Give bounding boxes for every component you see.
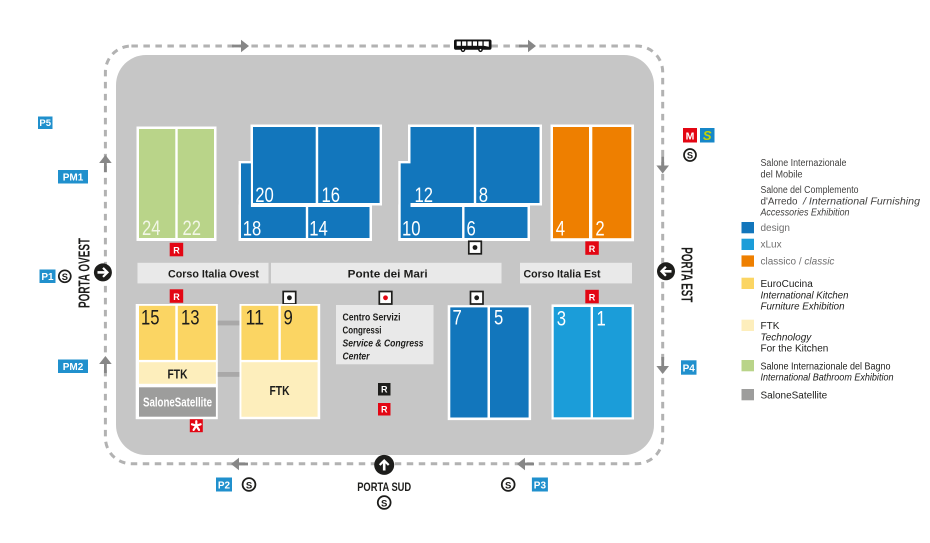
svg-text:24: 24 [142,217,161,240]
svg-text:S: S [703,128,712,143]
svg-text:PM1: PM1 [63,172,84,183]
svg-text:P1: P1 [41,272,54,283]
svg-text:PORTA EST: PORTA EST [678,247,695,302]
svg-text:P4: P4 [683,363,696,374]
svg-text:PORTA OVEST: PORTA OVEST [77,238,94,308]
svg-text:Center: Center [343,352,371,363]
svg-text:P2: P2 [218,480,231,491]
svg-text:7: 7 [453,307,462,330]
svg-text:P5: P5 [39,118,51,129]
svg-text:design: design [761,223,790,234]
svg-text:8: 8 [479,184,488,207]
svg-text:R: R [589,292,596,302]
svg-text:PORTA SUD: PORTA SUD [357,480,411,494]
svg-text:International Kitchen: International Kitchen [761,290,849,301]
svg-text:Technology: Technology [761,332,813,343]
svg-text:Service & Congress: Service & Congress [343,339,424,350]
svg-text:S: S [62,272,68,282]
svg-text:9: 9 [284,307,293,330]
svg-text:P3: P3 [534,480,547,491]
svg-text:Congressi: Congressi [343,326,382,337]
svg-text:Furniture Exhibition: Furniture Exhibition [761,302,845,313]
svg-text:18: 18 [243,218,262,241]
svg-text:R: R [381,405,388,415]
svg-text:20: 20 [255,184,273,207]
svg-text:M: M [686,130,695,142]
svg-text:4: 4 [556,218,566,241]
svg-text:Ponte dei Mari: Ponte dei Mari [348,269,428,281]
svg-text:13: 13 [181,307,200,330]
svg-text:15: 15 [141,307,160,330]
svg-text:Centro Servizi: Centro Servizi [343,313,401,324]
svg-text:/ International Furnishing: / International Furnishing [802,196,921,207]
svg-text:EuroCucina: EuroCucina [761,279,814,290]
svg-text:PM2: PM2 [63,362,84,373]
svg-text:xLux: xLux [761,240,782,251]
svg-text:del Mobile: del Mobile [761,170,803,181]
svg-text:d'Arredo: d'Arredo [761,196,798,207]
svg-text:For the Kitchen: For the Kitchen [761,344,829,355]
svg-text:Accessories Exhibition: Accessories Exhibition [760,208,850,219]
svg-text:Salone del Complemento: Salone del Complemento [761,185,859,196]
svg-text:3: 3 [557,307,566,330]
svg-text:Salone Internazionale del Bagn: Salone Internazionale del Bagno [761,361,891,372]
svg-text:FTK: FTK [168,366,188,381]
svg-text:Salone Internazionale: Salone Internazionale [761,158,847,169]
svg-text:S: S [381,498,387,509]
svg-text:16: 16 [322,184,341,207]
svg-text:S: S [505,480,511,491]
svg-text:FTK: FTK [761,321,780,332]
svg-text:R: R [381,385,388,395]
svg-text:R: R [173,292,180,302]
svg-text:2: 2 [595,218,604,241]
svg-text:11: 11 [246,307,265,330]
svg-text:R: R [173,245,180,255]
svg-text:10: 10 [402,218,421,241]
svg-text:R: R [589,244,596,254]
svg-text:22: 22 [183,217,202,240]
svg-text:6: 6 [467,218,476,241]
svg-text:5: 5 [494,307,503,330]
svg-text:14: 14 [309,218,328,241]
svg-text:S: S [246,480,252,491]
svg-text:International Bathroom Exhibit: International Bathroom Exhibition [761,373,894,384]
svg-text:SaloneSatellite: SaloneSatellite [761,390,828,401]
svg-text:12: 12 [415,184,434,207]
svg-text:FTK: FTK [270,383,290,398]
svg-text:classico / classic: classico / classic [761,256,835,267]
svg-text:SaloneSatellite: SaloneSatellite [143,394,212,409]
svg-text:S: S [687,151,693,161]
svg-text:1: 1 [597,307,606,330]
svg-text:Corso Italia Ovest: Corso Italia Ovest [168,269,259,281]
svg-text:Corso Italia Est: Corso Italia Est [524,269,601,281]
